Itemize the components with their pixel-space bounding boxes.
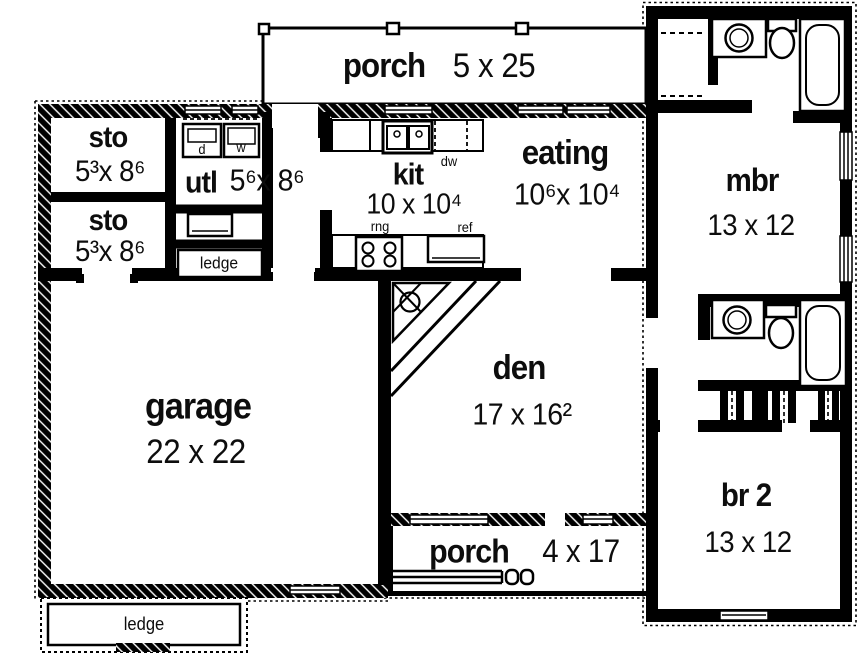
master-bedroom-dims: 13 x 12 — [707, 211, 794, 241]
master-bedroom-label: mbr — [726, 164, 779, 196]
bottom-porch-dims: 4 x 17 — [542, 535, 619, 567]
utility-dims: 5⁶x 8⁶ — [230, 165, 305, 196]
bedroom2-dims: 13 x 12 — [704, 528, 791, 558]
garage-ledge-label: ledge — [124, 615, 165, 633]
refrigerator — [428, 236, 484, 262]
toilet-bowl — [769, 318, 793, 348]
den-label: den — [493, 351, 546, 385]
utility-ledge-label: ledge — [200, 255, 238, 272]
bedroom2-label: br 2 — [721, 479, 771, 511]
bifold-closet-doors — [720, 391, 839, 423]
storage2-label: sto — [89, 206, 128, 236]
kitchen-sink — [383, 121, 432, 153]
top-porch-label: porch — [343, 49, 425, 83]
den-dims: 17 x 16² — [472, 399, 571, 430]
washer-label: w — [236, 140, 245, 154]
kitchen-dims: 10 x 10⁴ — [366, 191, 461, 220]
garage-dims: 22 x 22 — [146, 435, 245, 469]
eating-label: eating — [522, 136, 609, 170]
refrigerator-label: ref — [457, 220, 472, 234]
toilet-tank — [766, 305, 796, 317]
utility-label: utl — [185, 167, 217, 198]
range-label: rng — [371, 219, 390, 233]
kitchen-label: kit — [393, 159, 424, 190]
toilet-bowl — [770, 28, 794, 58]
garage-label: garage — [145, 388, 251, 425]
top-porch-dims: 5 x 25 — [453, 49, 535, 83]
storage2-dims: 5³x 8⁶ — [75, 237, 145, 267]
dishwasher-label: dw — [441, 154, 457, 168]
eating-dims: 10⁶x 10⁴ — [514, 179, 620, 210]
dryer-label: d — [198, 142, 205, 156]
storage1-dims: 5³x 8⁶ — [75, 157, 145, 187]
floor-plan: porch 5 x 25 sto 5³x 8⁶ sto 5³x 8⁶ utl 5… — [0, 0, 862, 664]
range — [356, 237, 402, 271]
storage1-label: sto — [89, 123, 128, 153]
bottom-porch-label: porch — [429, 535, 509, 568]
